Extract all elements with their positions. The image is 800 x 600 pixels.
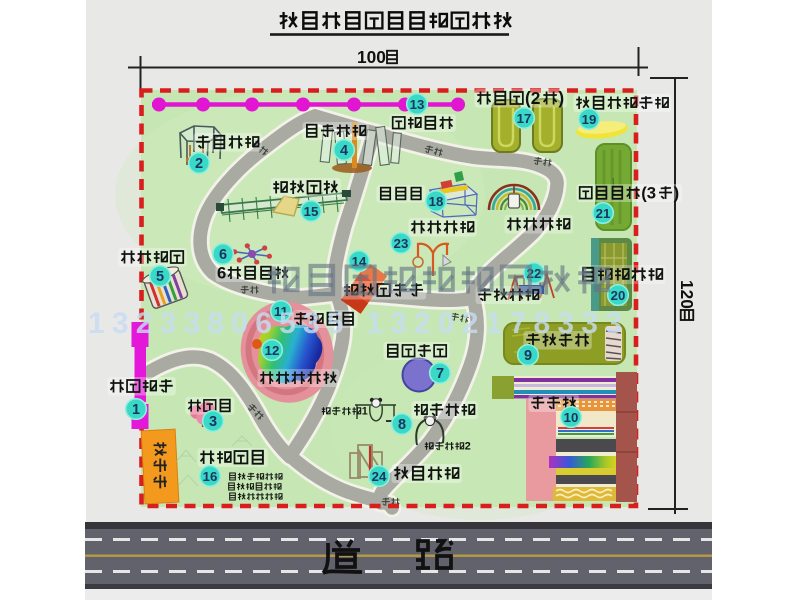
svg-text:(2: (2 [525,88,540,108]
svg-text:2: 2 [195,156,203,172]
svg-text:4: 4 [340,143,348,159]
svg-text:100: 100 [357,47,386,67]
svg-text:17: 17 [517,111,532,126]
svg-text:24: 24 [372,469,387,484]
svg-text:(3: (3 [641,183,656,202]
svg-text:13: 13 [410,97,425,112]
svg-text:5: 5 [156,269,164,285]
svg-text:9: 9 [524,348,532,364]
svg-text:120: 120 [677,280,697,309]
svg-text:6: 6 [217,263,226,282]
svg-text:13233806535 13202178333: 13233806535 13202178333 [88,307,629,340]
svg-text:6: 6 [219,247,227,263]
svg-text:18: 18 [429,194,444,209]
svg-text:21: 21 [596,206,611,221]
svg-text:7: 7 [436,366,444,382]
svg-text:10: 10 [564,410,579,425]
svg-text:8: 8 [398,417,406,433]
svg-text:2: 2 [465,441,471,453]
svg-text:20: 20 [611,288,626,303]
svg-text:1: 1 [132,402,140,418]
svg-text:1: 1 [362,406,368,418]
svg-text:19: 19 [582,112,597,127]
svg-text:): ) [674,183,680,202]
svg-text:23: 23 [394,236,409,251]
svg-text:16: 16 [203,469,218,484]
svg-text:15: 15 [304,204,319,219]
svg-text:12: 12 [265,343,280,358]
svg-text:): ) [558,88,564,108]
svg-text:3: 3 [209,414,217,430]
